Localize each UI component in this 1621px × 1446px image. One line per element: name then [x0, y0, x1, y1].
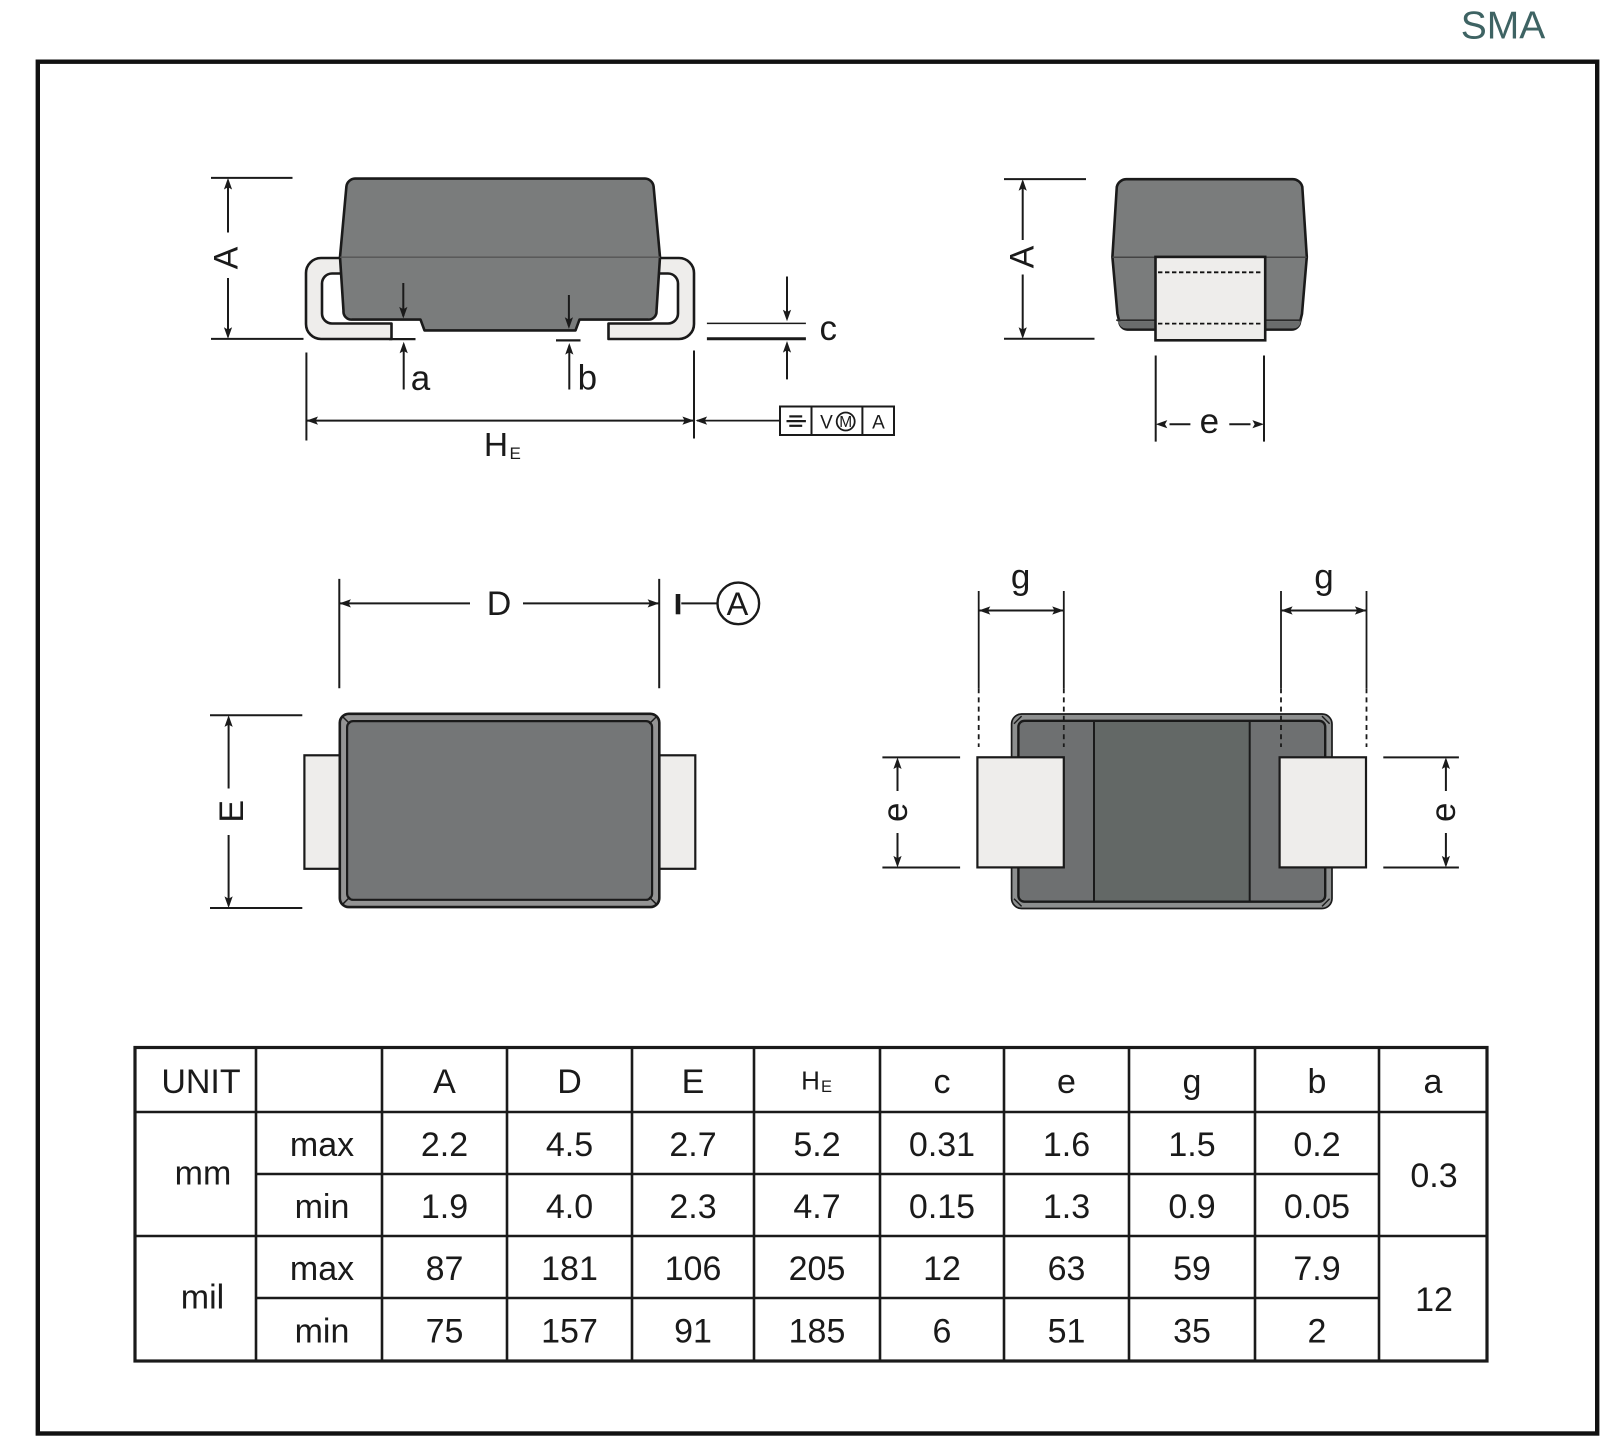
- svg-text:c: c: [934, 1063, 951, 1101]
- svg-text:2.2: 2.2: [421, 1126, 468, 1164]
- svg-text:0.9: 0.9: [1168, 1188, 1215, 1226]
- svg-text:4.0: 4.0: [546, 1188, 593, 1226]
- svg-text:c: c: [819, 309, 837, 348]
- svg-text:mil: mil: [181, 1278, 224, 1316]
- svg-text:205: 205: [789, 1250, 846, 1288]
- svg-text:g: g: [1183, 1063, 1202, 1101]
- svg-text:75: 75: [426, 1313, 464, 1351]
- svg-text:0.31: 0.31: [909, 1126, 975, 1164]
- svg-text:e: e: [1200, 402, 1219, 441]
- svg-text:b: b: [578, 359, 597, 398]
- svg-text:1.6: 1.6: [1043, 1126, 1090, 1164]
- svg-text:51: 51: [1048, 1313, 1086, 1351]
- svg-text:91: 91: [674, 1313, 712, 1351]
- svg-text:A: A: [872, 413, 885, 434]
- svg-text:e: e: [1057, 1063, 1076, 1101]
- svg-text:E: E: [821, 1078, 832, 1096]
- svg-text:1.5: 1.5: [1168, 1126, 1215, 1164]
- svg-text:7.9: 7.9: [1293, 1250, 1340, 1288]
- svg-text:b: b: [1308, 1063, 1327, 1101]
- svg-text:1.3: 1.3: [1043, 1188, 1090, 1226]
- svg-text:A: A: [433, 1063, 456, 1101]
- svg-text:A: A: [727, 586, 749, 622]
- svg-text:g: g: [1011, 558, 1030, 597]
- svg-text:0.05: 0.05: [1284, 1188, 1350, 1226]
- svg-text:A: A: [1004, 245, 1042, 268]
- svg-text:2: 2: [1308, 1313, 1327, 1351]
- svg-text:V: V: [820, 413, 833, 434]
- svg-text:E: E: [510, 444, 521, 463]
- svg-text:e: e: [1424, 803, 1463, 822]
- svg-text:max: max: [290, 1126, 354, 1164]
- svg-text:a: a: [1424, 1063, 1443, 1101]
- svg-text:12: 12: [923, 1250, 961, 1288]
- svg-text:185: 185: [789, 1313, 846, 1351]
- svg-text:A: A: [208, 246, 246, 269]
- svg-text:106: 106: [665, 1250, 722, 1288]
- svg-text:M: M: [839, 414, 852, 431]
- svg-text:35: 35: [1173, 1313, 1211, 1351]
- svg-text:D: D: [557, 1063, 582, 1101]
- svg-text:E: E: [682, 1063, 705, 1101]
- svg-text:min: min: [295, 1188, 350, 1226]
- svg-text:59: 59: [1173, 1250, 1211, 1288]
- svg-text:mm: mm: [175, 1154, 232, 1192]
- svg-text:SMA: SMA: [1461, 5, 1546, 48]
- svg-text:12: 12: [1415, 1281, 1453, 1319]
- svg-text:e: e: [876, 803, 915, 822]
- svg-text:5.2: 5.2: [793, 1126, 840, 1164]
- svg-text:H: H: [801, 1066, 820, 1096]
- svg-text:6: 6: [933, 1313, 952, 1351]
- svg-text:2.7: 2.7: [669, 1126, 716, 1164]
- svg-text:g: g: [1314, 558, 1333, 597]
- svg-text:max: max: [290, 1250, 354, 1288]
- svg-text:H: H: [484, 427, 508, 464]
- svg-text:min: min: [295, 1313, 350, 1351]
- svg-text:0.2: 0.2: [1293, 1126, 1340, 1164]
- svg-text:D: D: [487, 585, 512, 623]
- svg-text:a: a: [411, 359, 431, 398]
- svg-text:4.7: 4.7: [793, 1188, 840, 1226]
- svg-text:157: 157: [541, 1313, 598, 1351]
- svg-text:E: E: [213, 800, 251, 823]
- svg-text:0.15: 0.15: [909, 1188, 975, 1226]
- svg-text:4.5: 4.5: [546, 1126, 593, 1164]
- svg-text:2.3: 2.3: [669, 1188, 716, 1226]
- svg-text:181: 181: [541, 1250, 598, 1288]
- svg-text:0.3: 0.3: [1410, 1157, 1457, 1195]
- svg-text:1.9: 1.9: [421, 1188, 468, 1226]
- svg-text:87: 87: [426, 1250, 464, 1288]
- svg-text:UNIT: UNIT: [161, 1063, 240, 1101]
- svg-text:63: 63: [1048, 1250, 1086, 1288]
